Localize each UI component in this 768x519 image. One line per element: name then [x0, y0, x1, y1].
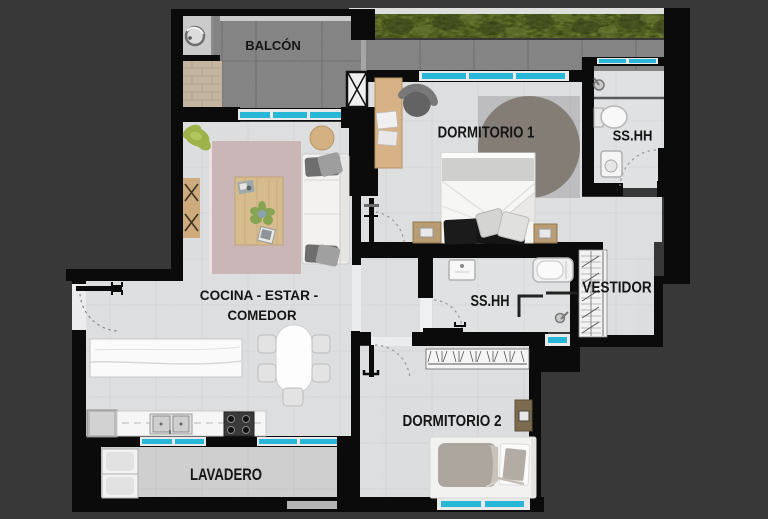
- svg-text:COMEDOR: COMEDOR: [227, 308, 296, 323]
- svg-text:DORMITORIO 1: DORMITORIO 1: [438, 125, 535, 142]
- svg-text:COCINA - ESTAR -: COCINA - ESTAR -: [200, 288, 319, 303]
- svg-text:LAVADERO: LAVADERO: [190, 467, 262, 485]
- svg-text:BALCÓN: BALCÓN: [245, 38, 301, 53]
- svg-text:DORMITORIO 2: DORMITORIO 2: [402, 413, 501, 430]
- svg-text:SS.HH: SS.HH: [470, 293, 509, 311]
- svg-text:SS.HH: SS.HH: [613, 128, 653, 144]
- svg-text:VESTIDOR: VESTIDOR: [582, 280, 652, 297]
